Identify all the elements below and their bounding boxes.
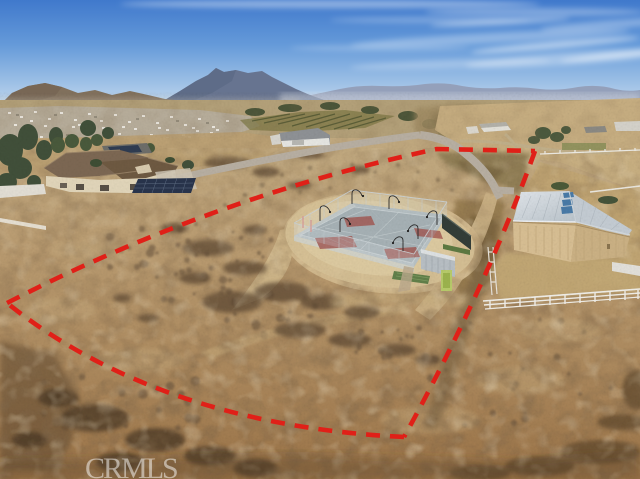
svg-text:CRMLS: CRMLS bbox=[85, 452, 177, 479]
